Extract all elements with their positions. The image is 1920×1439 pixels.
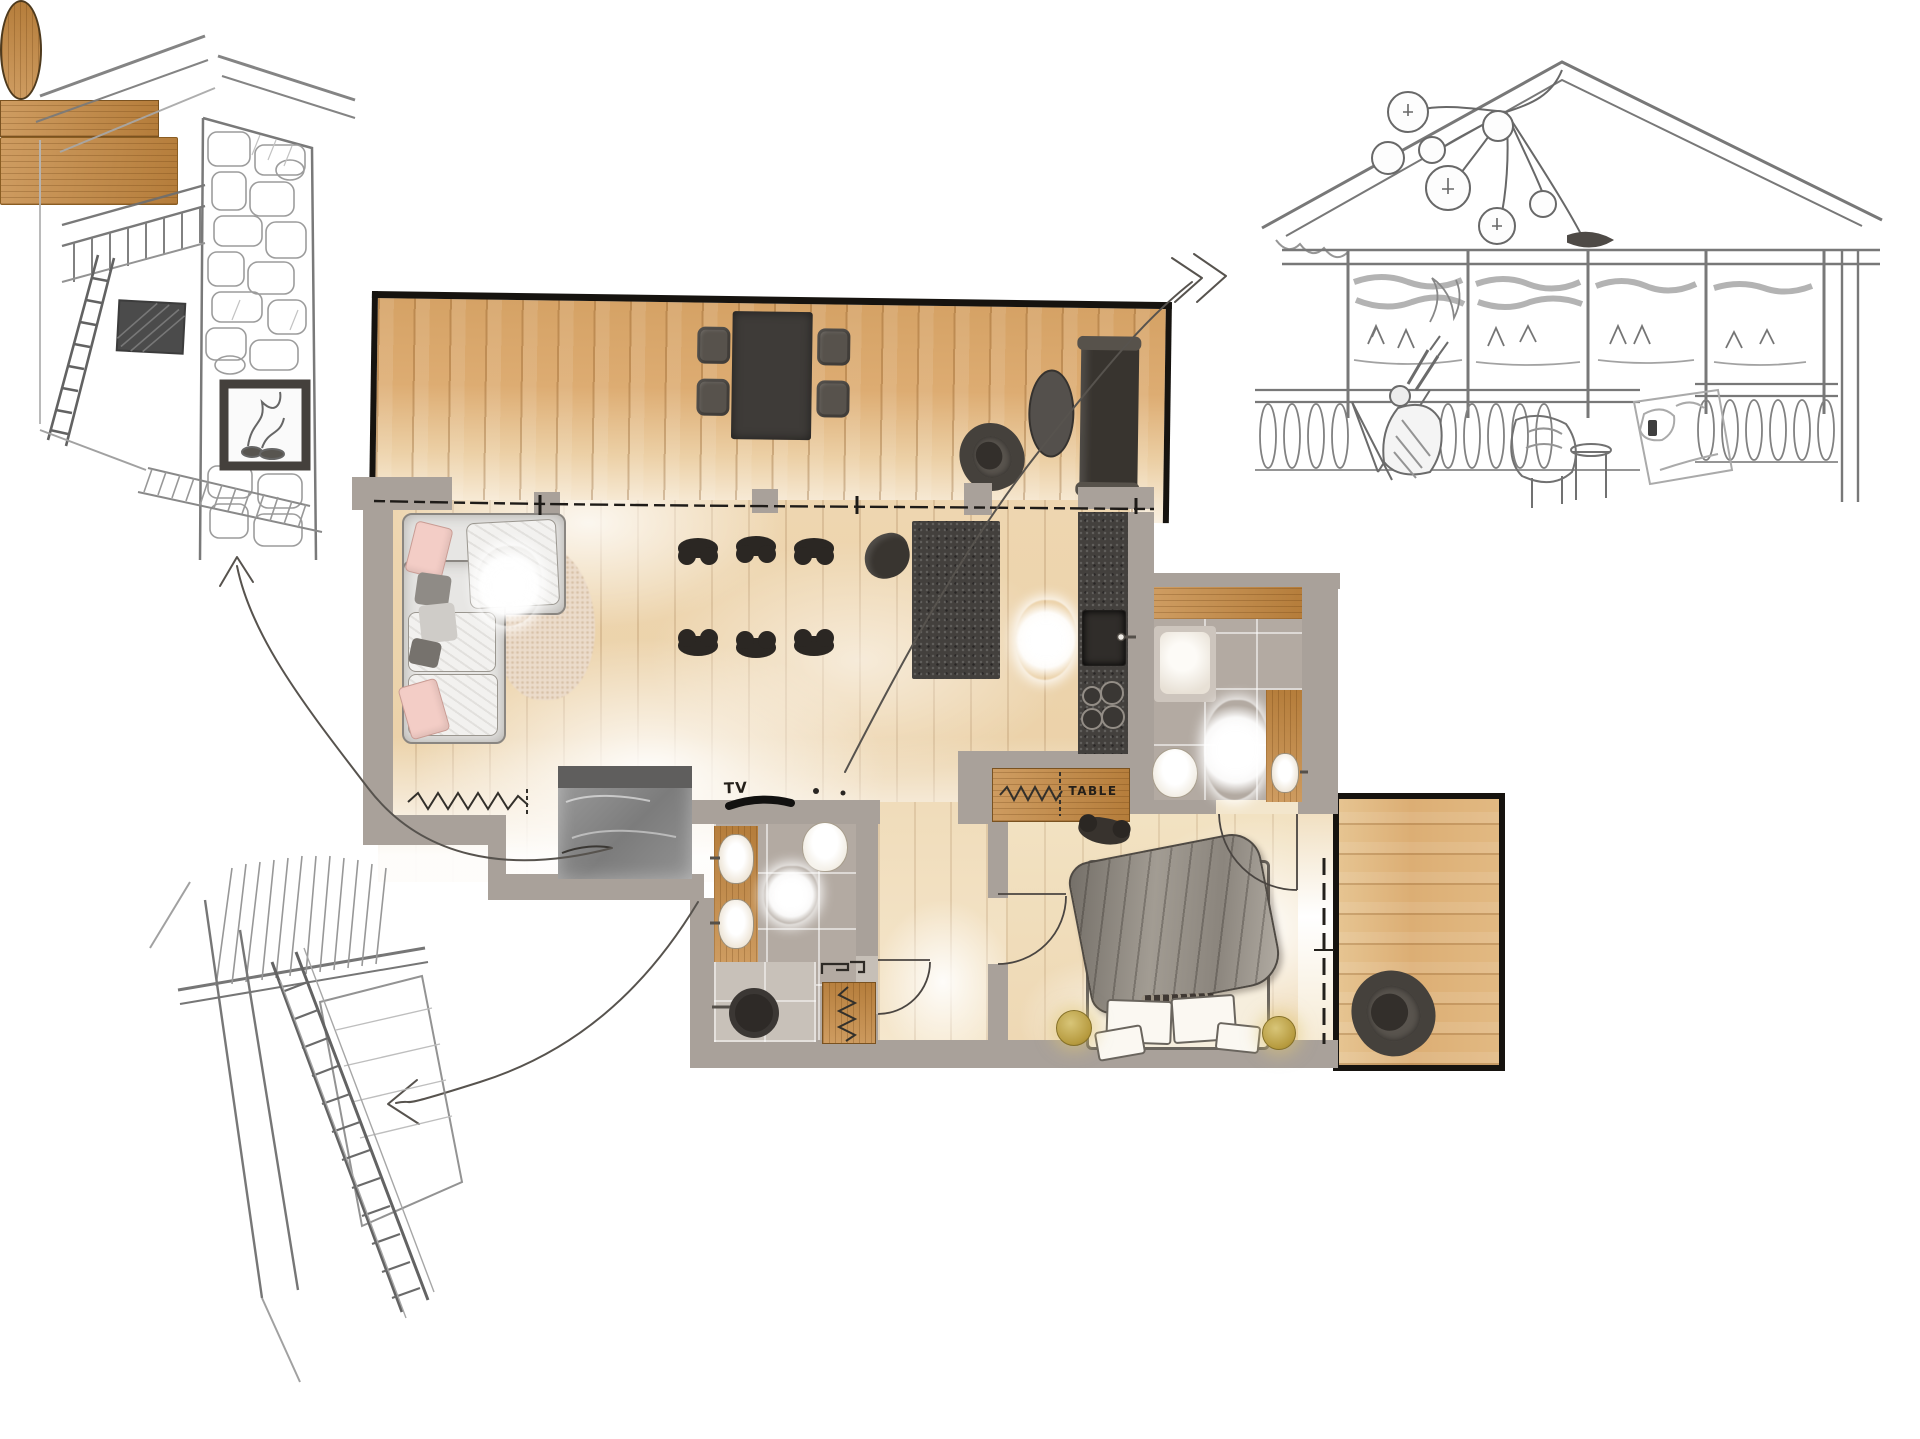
dining-chair <box>678 636 718 656</box>
dining-chair <box>794 538 834 558</box>
bedside-lamp <box>1262 1016 1296 1050</box>
hanging-bench <box>1079 338 1139 495</box>
wall <box>1302 573 1338 814</box>
zigzag-sideboard <box>0 100 159 137</box>
outdoor-chair <box>817 328 851 365</box>
bath-top-toilet <box>1152 748 1198 798</box>
bedside-lamp <box>1056 1010 1092 1046</box>
outdoor-chair <box>697 327 731 364</box>
shower-drain <box>729 988 779 1038</box>
gray-pillow <box>418 602 458 644</box>
bath-top-washbasin <box>1271 753 1299 793</box>
wall <box>363 505 393 823</box>
bath-bottom-sink <box>718 899 754 949</box>
wall <box>988 820 1008 898</box>
window-mullion <box>964 483 992 515</box>
bath-top-shower <box>1154 626 1216 702</box>
wall <box>1128 512 1154 812</box>
bath-bottom-zigzag-cabinet <box>822 982 876 1044</box>
wall <box>958 751 994 824</box>
door-opening <box>1216 800 1298 814</box>
outdoor-dining-table <box>731 311 813 440</box>
bath-bottom-toilet <box>802 822 848 872</box>
oval-coffee-table <box>1028 369 1075 458</box>
dining-chair <box>736 536 776 556</box>
wall <box>988 964 1008 1044</box>
kitchen-sink <box>1082 610 1126 666</box>
bed-pillow <box>1215 1022 1262 1054</box>
wall <box>363 815 506 845</box>
dining-table <box>0 137 178 205</box>
bath-top-vanity <box>1154 587 1302 619</box>
marble-mat <box>558 766 692 879</box>
window-mullion <box>752 489 778 513</box>
dining-chair <box>736 638 776 658</box>
dining-chair <box>794 636 834 656</box>
sketch-chalet-window-view <box>1255 62 1882 508</box>
dining-chair <box>678 538 718 558</box>
bath-bottom-sink <box>718 834 754 884</box>
sketch-ladder-detail <box>150 856 462 1382</box>
floor-plan-illustration: TV TABLE <box>0 0 1920 1439</box>
hallway-floor <box>1298 814 1334 1042</box>
outdoor-chair <box>816 380 850 417</box>
wall-tv <box>692 800 880 824</box>
outdoor-chair <box>696 379 730 416</box>
kitchen-island <box>912 521 1000 679</box>
oval-side-table <box>0 0 42 100</box>
window-mullion <box>534 492 560 514</box>
window-mullion <box>1078 487 1154 509</box>
table-label: TABLE <box>1060 784 1126 798</box>
tv-label: TV <box>724 779 748 798</box>
